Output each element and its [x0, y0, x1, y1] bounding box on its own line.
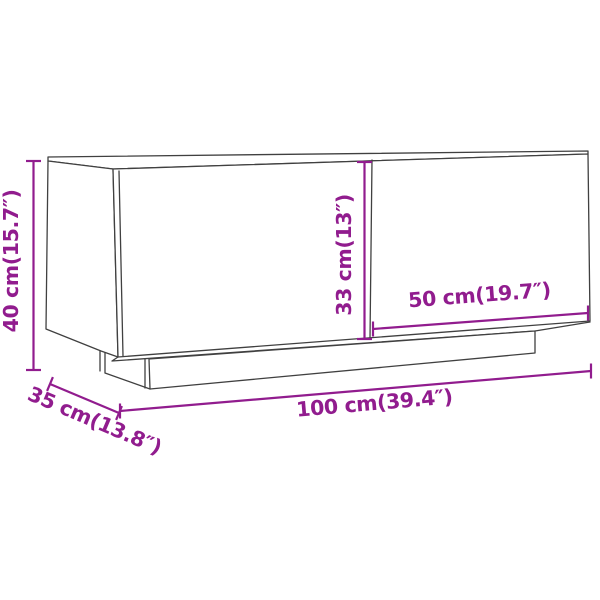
cabinet-side-face — [46, 161, 118, 357]
dimension-depth-label: 35 cm(13.8″) — [24, 382, 165, 460]
dimension-height-label: 40 cm(15.7″) — [0, 190, 23, 333]
dimension-door-height-label: 33 cm(13″) — [332, 194, 356, 316]
dimension-height: 40 cm(15.7″) — [0, 161, 41, 370]
diagram-canvas: 40 cm(15.7″) 33 cm(13″) 50 cm(19.7″) — [0, 0, 600, 600]
product-dimension-diagram: 40 cm(15.7″) 33 cm(13″) 50 cm(19.7″) — [0, 0, 600, 600]
cabinet-drawing — [46, 151, 590, 389]
dimension-depth: 35 cm(13.8″) — [24, 377, 165, 459]
